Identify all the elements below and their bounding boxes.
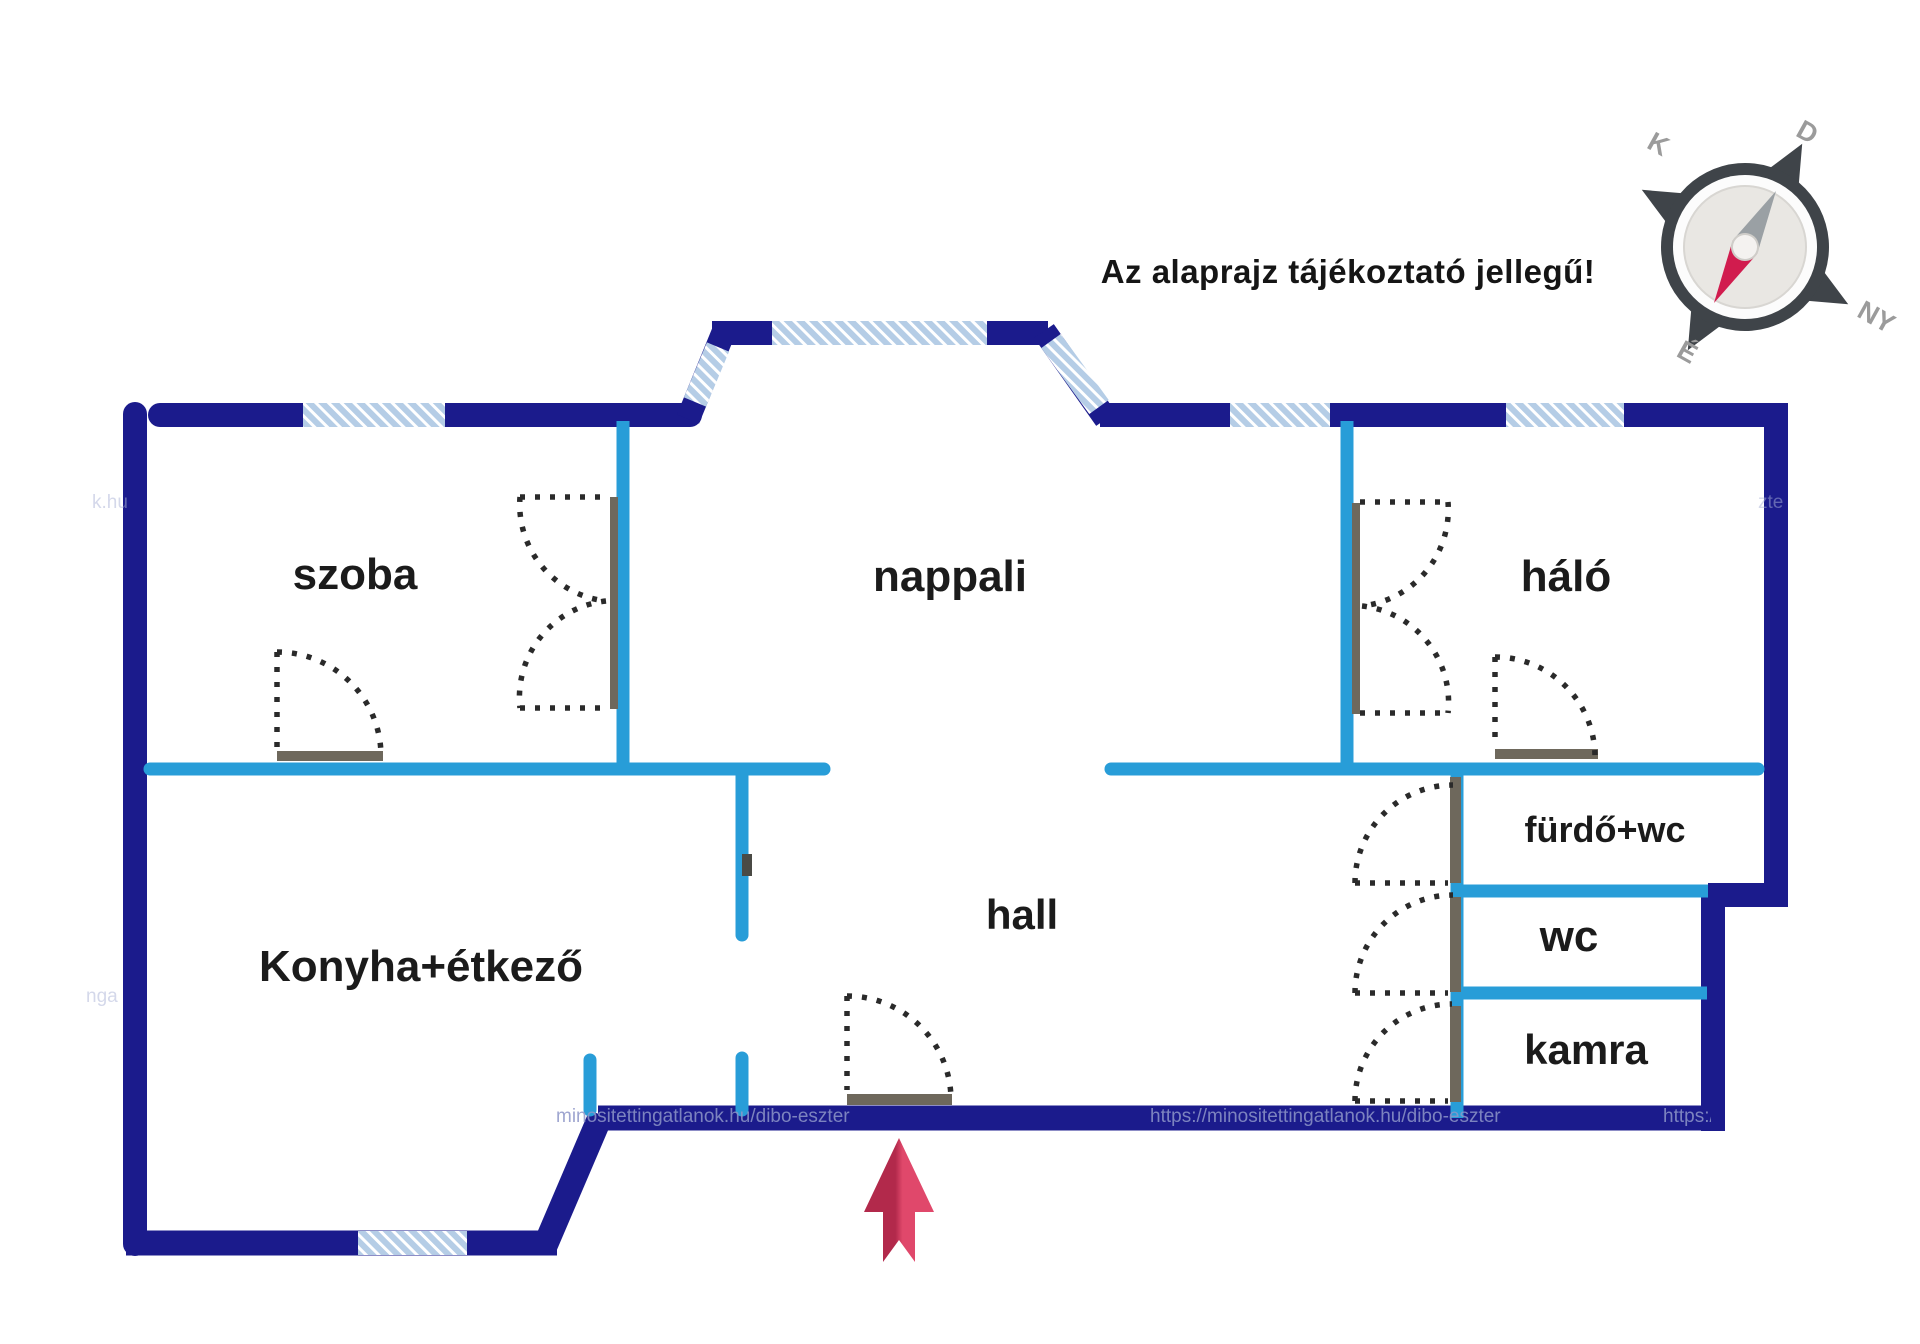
door-leaf-szoba — [277, 751, 383, 761]
room-label-halo: háló — [1521, 555, 1611, 599]
window-bay-right — [1051, 341, 1099, 407]
door-leaf-szoba-double — [610, 497, 618, 709]
door-swing-szoba — [277, 652, 381, 756]
room-label-hall: hall — [986, 894, 1058, 936]
room-label-wc: wc — [1540, 915, 1599, 959]
watermark-text: minositettingatlanok.hu/dibo-eszter — [556, 1106, 850, 1128]
door-swing-entrance — [847, 996, 951, 1100]
door-swing-halo — [1495, 657, 1595, 757]
door-swing-furdo — [1355, 785, 1453, 883]
room-label-kamra: kamra — [1524, 1029, 1648, 1071]
floor-plan-drawing: D NY É K — [0, 0, 1920, 1344]
compass-letter-west: NY — [1853, 295, 1900, 339]
compass-letter-south: D — [1792, 114, 1824, 150]
watermark-text: https://minositettingatlanok.hu/dibo-esz… — [1150, 1106, 1501, 1128]
disclaimer-text: Az alaprajz tájékoztató jellegű! — [1101, 253, 1596, 291]
room-label-furdo: fürdő+wc — [1524, 812, 1685, 848]
watermark-row: minositettingatlanok.hu/dibo-eszter http… — [556, 1106, 1711, 1130]
door-leaf-furdo — [1450, 777, 1461, 883]
door-leaf-kamra — [1450, 1006, 1461, 1102]
door-hinge-notch — [742, 854, 752, 876]
compass-letter-east: K — [1643, 126, 1675, 162]
door-swing-halo-double — [1360, 502, 1449, 713]
door-leaf-wc — [1450, 897, 1461, 992]
watermark-text: https://minositet — [1663, 1106, 1711, 1128]
watermark-fragment: zte — [1758, 492, 1783, 514]
door-swing-kamra — [1355, 1004, 1452, 1101]
wall-entrance-diagonal — [545, 1115, 601, 1246]
room-label-konyha: Konyha+étkező — [259, 945, 583, 989]
interior-partitions — [150, 421, 1758, 1118]
room-label-nappali: nappali — [873, 555, 1027, 599]
room-label-szoba: szoba — [293, 553, 418, 597]
door-leaf-entrance — [847, 1094, 952, 1105]
watermark-fragment: nga — [86, 986, 118, 1008]
compass-icon: D NY É K — [1585, 87, 1906, 408]
door-leaf-halo-double — [1352, 503, 1360, 714]
window-bay-left — [695, 347, 718, 402]
door-swing-wc — [1355, 895, 1453, 993]
watermark-fragment: k.hu — [92, 492, 128, 514]
door-leaf-halo — [1495, 749, 1598, 759]
door-swing-szoba-double — [519, 497, 610, 708]
entrance-arrow-icon — [864, 1138, 934, 1262]
floor-plan-page: D NY É K Az alaprajz tájékoztató jellegű… — [0, 0, 1920, 1344]
